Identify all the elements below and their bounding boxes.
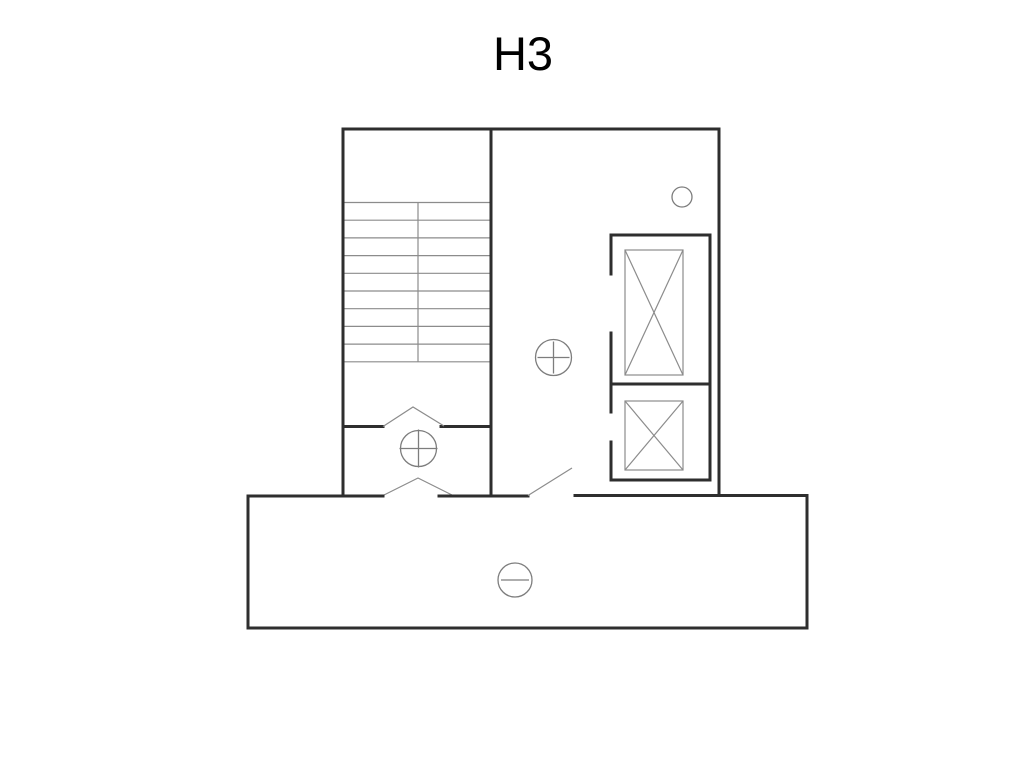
stairwell bbox=[343, 203, 491, 496]
elevator-shaft bbox=[611, 235, 710, 480]
floor-plan bbox=[0, 0, 1024, 767]
circle-plus-marker-lobby-icon bbox=[536, 340, 572, 376]
circle-minus-marker-icon bbox=[498, 563, 532, 597]
small-circle-marker-icon bbox=[672, 187, 692, 207]
elevator-car-small bbox=[625, 401, 683, 470]
floor-plan-page: H3 bbox=[0, 0, 1024, 767]
corridor-door-leaf-icon bbox=[528, 468, 572, 496]
circle-plus-marker-stair-icon bbox=[400, 430, 438, 468]
elevator-car-large bbox=[625, 250, 683, 375]
upper-structure-walls bbox=[343, 129, 719, 496]
stair-landing-door-chevron-icon bbox=[383, 407, 444, 427]
lower-wing bbox=[248, 468, 807, 628]
stair-treads bbox=[345, 203, 490, 362]
stair-entry-door-chevron-icon bbox=[383, 478, 452, 496]
